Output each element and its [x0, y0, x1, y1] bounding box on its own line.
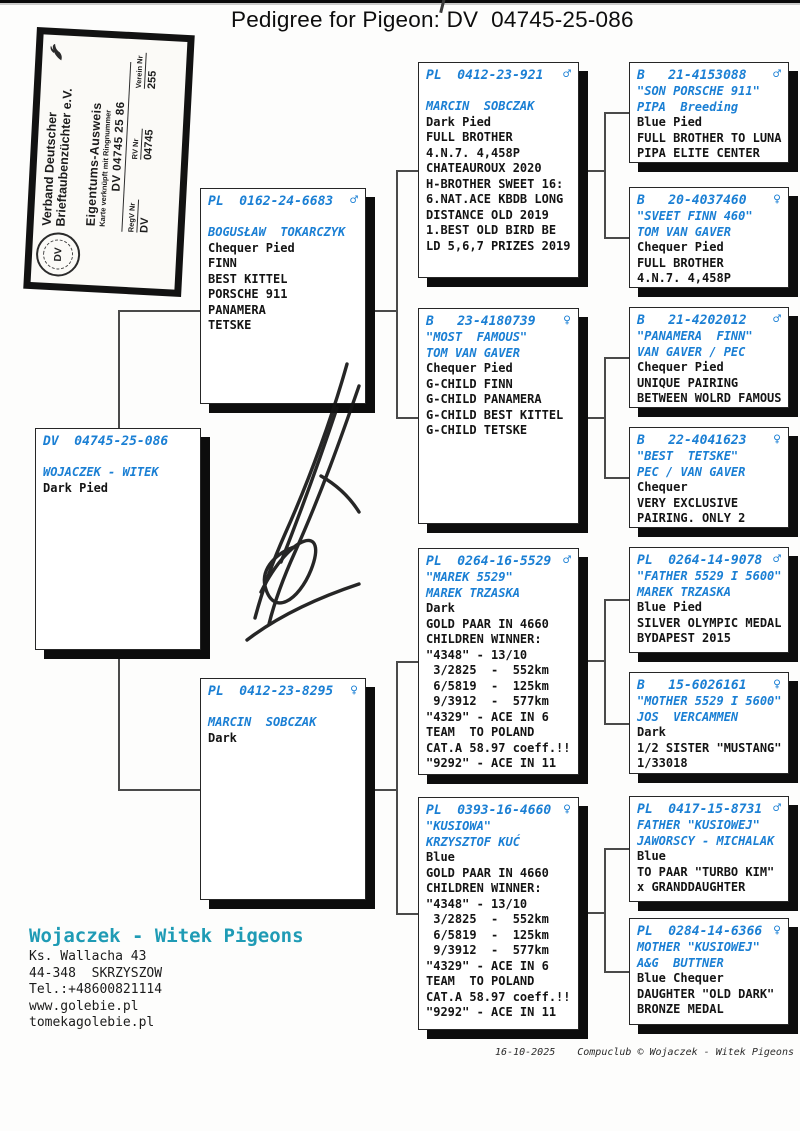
- ring-number: PL 0417-15-8731: [637, 802, 762, 818]
- pedigree-box-mother: PL 0412-23-8295♀ MARCIN SOBCZAK Dark: [200, 678, 366, 900]
- ring-number: PL 0284-14-6366: [637, 924, 762, 940]
- bird-info: Blue Pied FULL BROTHER TO LUNA PIPA ELIT…: [637, 115, 781, 162]
- male-symbol-icon: ♂: [773, 553, 781, 567]
- male-symbol-icon: ♂: [563, 68, 571, 82]
- ring-number: PL 0162-24-6683: [208, 194, 333, 210]
- connector-line: [604, 357, 629, 359]
- fancier-name: MARCIN SOBCZAK: [426, 99, 571, 115]
- female-symbol-icon: ♀: [773, 924, 781, 938]
- pigeon-icon: [48, 42, 65, 63]
- connector-line: [396, 170, 398, 418]
- connector-line: [396, 661, 418, 663]
- connector-line: [118, 310, 200, 312]
- ring-number: PL 0264-14-9078: [637, 553, 762, 569]
- pedigree-box-grandmother-paternal: B 23-4180739♀ "MOST FAMOUS" TOM VAN GAVE…: [418, 308, 579, 524]
- pedigree-box-ggp7: PL 0417-15-8731♂ FATHER "KUSIOWEJ" JAWOR…: [629, 796, 789, 902]
- pedigree-box-grandmother-maternal: PL 0393-16-4660♀ "KUSIOWA" KRZYSZTOF KUĆ…: [418, 797, 579, 1030]
- bird-info: Dark Pied FULL BROTHER 4.N.7. 4,458P CHA…: [426, 115, 571, 255]
- page-title: Pedigree for Pigeon: DV 04745-25-086: [231, 7, 634, 33]
- ring-number: PL 0393-16-4660: [426, 803, 551, 819]
- bird-info: Dark GOLD PAAR IN 4660 CHILDREN WINNER: …: [426, 601, 571, 772]
- pedigree-box-grandfather-paternal: PL 0412-23-921♂ MARCIN SOBCZAK Dark Pied…: [418, 62, 579, 278]
- bird-info: Chequer Pied UNIQUE PAIRING BETWEEN WOLR…: [637, 360, 781, 407]
- ring-number: PL 0412-23-8295: [208, 684, 333, 700]
- loft-name: Wojaczek - Witek Pigeons: [29, 925, 304, 947]
- bird-and-fancier-name: "PANAMERA FINN" VAN GAVER / PEC: [637, 329, 781, 360]
- ring-number: B 23-4180739: [426, 314, 536, 330]
- bird-and-fancier-name: "SVEET FINN 460" TOM VAN GAVER: [637, 209, 781, 240]
- female-symbol-icon: ♀: [350, 684, 358, 698]
- male-symbol-icon: ♂: [563, 554, 571, 568]
- connector-line: [604, 971, 629, 973]
- ring-number: B 21-4202012: [637, 313, 747, 329]
- connector-line: [583, 912, 604, 914]
- female-symbol-icon: ♀: [773, 433, 781, 447]
- bird-info: Dark: [208, 731, 358, 747]
- club-seal-icon: DV: [35, 231, 81, 277]
- pedigree-document: Pedigree for Pigeon: DV 04745-25-086 DV …: [0, 0, 800, 1131]
- ring-number: PL 0264-16-5529: [426, 554, 551, 570]
- connector-line: [604, 477, 629, 479]
- pedigree-box-father: PL 0162-24-6683♂ BOGUSŁAW TOKARCZYK Cheq…: [200, 188, 366, 404]
- fancier-name: WOJACZEK - WITEK: [43, 465, 193, 481]
- connector-line: [583, 417, 604, 419]
- connector-line: [604, 723, 629, 725]
- connector-line: [375, 789, 397, 791]
- fancier-name: BOGUSŁAW TOKARCZYK: [208, 225, 358, 241]
- pedigree-box-ggp4: B 22-4041623♀ "BEST TETSKE" PEC / VAN GA…: [629, 427, 789, 528]
- bird-info: Blue Pied SILVER OLYMPIC MEDAL BYDAPEST …: [637, 600, 781, 647]
- ring-number: B 15-6026161: [637, 678, 747, 694]
- pedigree-box-ggp8: PL 0284-14-6366♀ MOTHER "KUSIOWEJ" A&G B…: [629, 918, 789, 1025]
- connector-line: [604, 599, 606, 724]
- bird-and-fancier-name: FATHER "KUSIOWEJ" JAWORSCY - MICHALAK: [637, 818, 781, 849]
- connector-line: [604, 599, 629, 601]
- connector-line: [583, 660, 604, 662]
- connector-line: [396, 913, 418, 915]
- bird-and-fancier-name: "SON PORSCHE 911" PIPA Breeding: [637, 84, 781, 115]
- connector-line: [396, 170, 418, 172]
- ring-number: B 21-4153088: [637, 68, 747, 84]
- male-symbol-icon: ♂: [773, 68, 781, 82]
- fancier-name: MARCIN SOBCZAK: [208, 715, 358, 731]
- pedigree-box-ggp6: B 15-6026161♀ "MOTHER 5529 I 5600" JOS V…: [629, 672, 789, 774]
- loft-address: Ks. Wallacha 43 44-348 SKRZYSZOW Tel.:+4…: [29, 949, 304, 1032]
- bird-info: Blue Chequer DAUGHTER "OLD DARK" BRONZE …: [637, 971, 781, 1018]
- connector-line: [118, 789, 200, 791]
- bird-info: Chequer Pied G-CHILD FINN G-CHILD PANAME…: [426, 361, 571, 439]
- connector-line: [604, 237, 629, 239]
- scan-edge-artifact: [0, 3, 800, 5]
- bird-info: Dark 1/2 SISTER "MUSTANG" 1/33018: [637, 725, 781, 772]
- connector-line: [604, 112, 629, 114]
- bird-and-fancier-name: "FATHER 5529 I 5600" MAREK TRZASKA: [637, 569, 781, 600]
- card-field-rv: RV Nr 04745: [130, 129, 156, 161]
- female-symbol-icon: ♀: [563, 803, 571, 817]
- footer: 16-10-2025Compuclub © Wojaczek - Witek P…: [471, 1036, 794, 1069]
- bird-info: Chequer Pied FULL BROTHER 4.N.7. 4,458P: [637, 240, 781, 287]
- male-symbol-icon: ♂: [350, 194, 358, 208]
- bird-info: Dark Pied: [43, 481, 193, 497]
- ring-number: DV 04745-25-086: [43, 434, 168, 450]
- bird-info: Chequer VERY EXCLUSIVE PAIRING. ONLY 2: [637, 480, 781, 527]
- card-field-verein: Verein Nr 255: [134, 52, 160, 89]
- ring-number: B 20-4037460: [637, 193, 747, 209]
- male-symbol-icon: ♂: [773, 802, 781, 816]
- bird-info: Blue TO PAAR "TURBO KIM" x GRANDDAUGHTER: [637, 849, 781, 896]
- connector-line: [604, 357, 606, 478]
- connector-line: [604, 112, 606, 238]
- bird-info: Chequer Pied FINN BEST KITTEL PORSCHE 91…: [208, 241, 358, 334]
- female-symbol-icon: ♀: [773, 678, 781, 692]
- bird-and-fancier-name: MOTHER "KUSIOWEJ" A&G BUTTNER: [637, 940, 781, 971]
- ownership-card: DV Verband Deutscher Brieftaubenzüchter …: [23, 27, 194, 297]
- connector-line: [118, 310, 120, 428]
- bird-and-fancier-name: "BEST TETSKE" PEC / VAN GAVER: [637, 449, 781, 480]
- pedigree-box-ggp1: B 21-4153088♂ "SON PORSCHE 911" PIPA Bre…: [629, 62, 789, 163]
- seal-text: DV: [52, 247, 64, 261]
- connector-line: [118, 650, 120, 790]
- connector-line: [396, 417, 418, 419]
- pedigree-box-ggp3: B 21-4202012♂ "PANAMERA FINN" VAN GAVER …: [629, 307, 789, 408]
- pedigree-box-ggp2: B 20-4037460♀ "SVEET FINN 460" TOM VAN G…: [629, 187, 789, 288]
- connector-line: [375, 310, 397, 312]
- connector-line: [604, 848, 629, 850]
- connector-line: [396, 661, 398, 914]
- bird-and-fancier-name: "MOTHER 5529 I 5600" JOS VERCAMMEN: [637, 694, 781, 725]
- male-symbol-icon: ♂: [773, 313, 781, 327]
- pedigree-box-ggp5: PL 0264-14-9078♂ "FATHER 5529 I 5600" MA…: [629, 547, 789, 653]
- female-symbol-icon: ♀: [773, 193, 781, 207]
- connector-line: [583, 170, 604, 172]
- pedigree-box-subject: DV 04745-25-086 WOJACZEK - WITEK Dark Pi…: [35, 428, 201, 650]
- ring-number: B 22-4041623: [637, 433, 747, 449]
- ring-number: PL 0412-23-921: [426, 68, 543, 84]
- footer-date: 16-10-2025: [495, 1047, 555, 1058]
- bird-info: Blue GOLD PAAR IN 4660 CHILDREN WINNER: …: [426, 850, 571, 1021]
- footer-credit: Compuclub © Wojaczek - Witek Pigeons: [577, 1047, 794, 1058]
- female-symbol-icon: ♀: [563, 314, 571, 328]
- connector-line: [604, 848, 606, 972]
- pedigree-box-grandfather-maternal: PL 0264-16-5529♂ "MAREK 5529" MAREK TRZA…: [418, 548, 579, 775]
- bird-and-fancier-name: "MOST FAMOUS" TOM VAN GAVER: [426, 330, 571, 361]
- bird-and-fancier-name: "MAREK 5529" MAREK TRZASKA: [426, 570, 571, 601]
- card-field-regv: RegV Nr DV: [126, 199, 152, 233]
- bird-and-fancier-name: "KUSIOWA" KRZYSZTOF KUĆ: [426, 819, 571, 850]
- loft-contact-block: Wojaczek - Witek Pigeons Ks. Wallacha 43…: [29, 925, 304, 1032]
